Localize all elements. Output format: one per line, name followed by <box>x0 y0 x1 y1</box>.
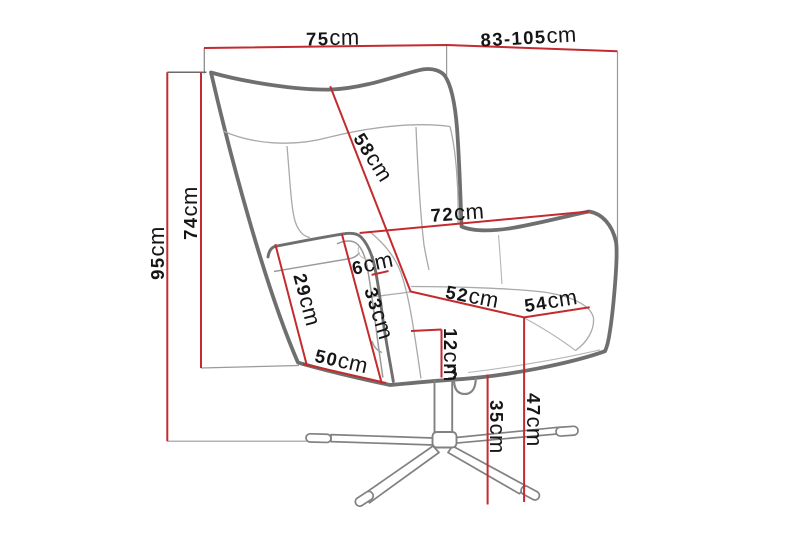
svg-text:35cm: 35cm <box>485 400 510 454</box>
svg-text:47cm: 47cm <box>522 393 547 447</box>
svg-text:12cm: 12cm <box>439 328 464 382</box>
svg-text:74cm: 74cm <box>177 186 202 240</box>
svg-text:95cm: 95cm <box>144 226 169 280</box>
svg-text:75cm: 75cm <box>306 25 360 51</box>
